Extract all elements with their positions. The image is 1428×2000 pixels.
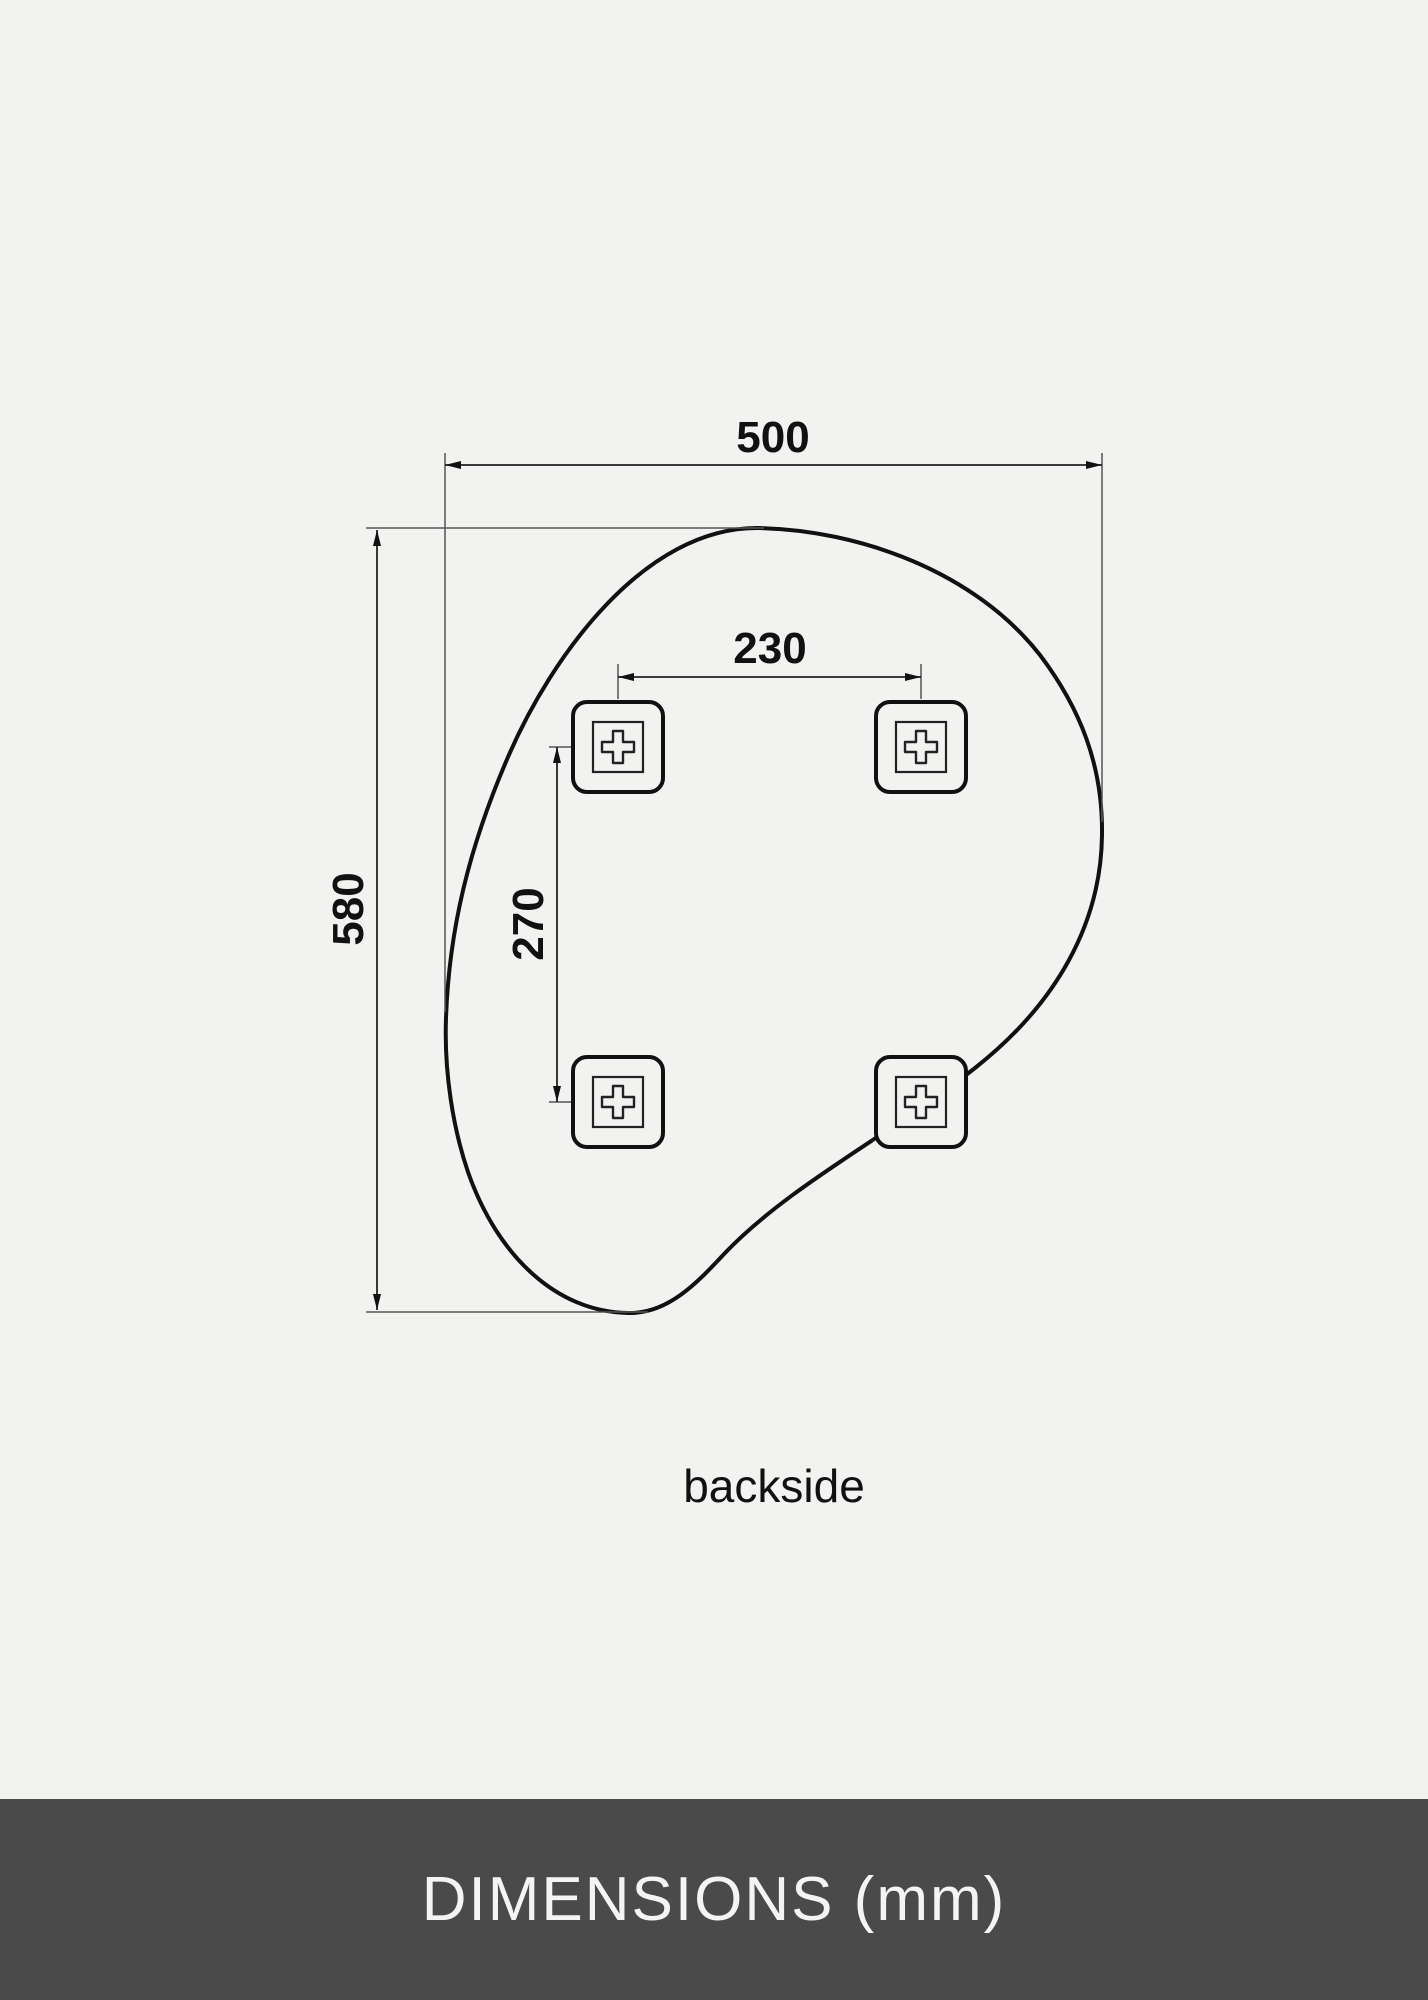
mount-bracket-bottom-left [573, 1057, 663, 1147]
footer-title: DIMENSIONS (mm) [422, 1864, 1007, 1935]
page: 500 580 230 270 backside [0, 0, 1428, 2000]
backside-caption: backside [683, 1460, 865, 1512]
footer-band: DIMENSIONS (mm) [0, 1799, 1428, 2000]
bracket-spacing-horizontal-label: 230 [733, 624, 806, 673]
mount-bracket-bottom-right [876, 1057, 966, 1147]
width-dimension-label: 500 [736, 413, 809, 462]
dimension-bracket-spacing-vertical: 270 [504, 747, 571, 1102]
bracket-spacing-vertical-label: 270 [504, 887, 553, 960]
mount-bracket-top-right [876, 702, 966, 792]
mirror-dimension-diagram: 500 580 230 270 backside [0, 0, 1428, 1799]
mount-bracket-top-left [573, 702, 663, 792]
height-dimension-label: 580 [324, 872, 373, 945]
dimension-bracket-spacing-horizontal: 230 [618, 624, 921, 699]
